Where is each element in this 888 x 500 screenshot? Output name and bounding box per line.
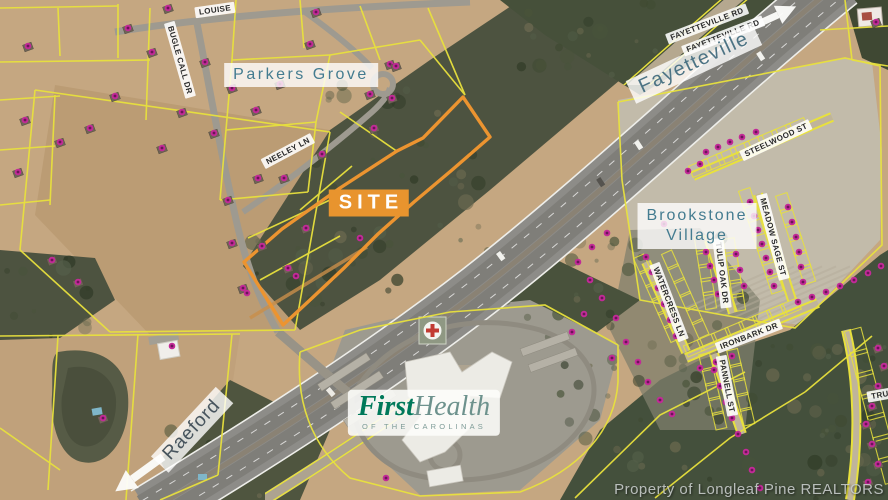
lot-marker-core [865,423,868,426]
lot-marker-core [24,119,27,122]
lot-marker-core [257,177,260,180]
lot-marker-core [743,285,746,288]
logo-tagline: OF THE CAROLINAS [358,422,490,431]
lot-marker-core [751,469,754,472]
lot-marker-core [798,251,801,254]
firsthealth-logo: FirstHealth OF THE CAROLINAS [348,390,500,436]
lot-marker-core [737,433,740,436]
aerial-site-map: LOUISE BUGLE CALL DR NEELEY LN FAYETTEVI… [0,0,888,500]
lot-marker-core [102,417,105,420]
lot-marker-core [246,292,249,295]
logo-health: Health [414,391,490,422]
lot-marker-core [735,253,738,256]
lot-marker-core [765,257,768,260]
lot-marker-core [729,141,732,144]
logo-first: First [358,391,414,422]
lot-marker-core [773,285,776,288]
lot-marker-core [699,367,702,370]
lot-marker-core [741,136,744,139]
lot-marker-core [671,413,674,416]
lot-marker-core [213,132,216,135]
lot-marker-core [114,95,117,98]
lot-marker-core [591,246,594,249]
lot-marker-core [825,291,828,294]
lot-marker-core [395,65,398,68]
lot-marker-core [127,27,130,30]
lot-marker-core [877,347,880,350]
lot-marker-core [369,93,372,96]
lot-marker-core [77,281,80,284]
lot-marker-core [227,199,230,202]
lot-marker-core [161,147,164,150]
lot-marker-core [797,301,800,304]
lot-marker-core [171,345,174,348]
lot-marker-core [802,281,805,284]
lot-marker-core [601,297,604,300]
lot-marker-core [717,146,720,149]
lot-marker-core [261,245,264,248]
lot-marker-core [705,251,708,254]
lot-marker-core [231,87,234,90]
lot-marker-core [287,267,290,270]
lot-marker-core [204,61,207,64]
lot-marker-core [583,313,586,316]
lot-marker-core [755,131,758,134]
neighborhood-label-parkers-grove: Parkers Grove [224,63,378,87]
lot-marker-core [647,381,650,384]
lot-marker-core [883,365,886,368]
lot-marker-core [731,417,734,420]
lot-marker-core [359,237,362,240]
lot-marker-core [871,443,874,446]
lot-marker-core [391,97,394,100]
lot-marker-core [709,265,712,268]
lot-marker-core [757,229,760,232]
lot-marker-core [321,153,324,156]
lot-marker-core [589,279,592,282]
lot-marker-core [89,127,92,130]
lot-marker-core [645,256,648,259]
brookstone-line1: Brookstone [647,206,748,226]
lot-marker-core [839,285,842,288]
lot-marker-core [875,21,878,24]
lot-marker-core [242,287,245,290]
lot-marker-core [713,279,716,282]
lot-marker-core [713,369,716,372]
lot-marker-core [167,7,170,10]
lot-marker-core [231,242,234,245]
lot-marker-core [255,109,258,112]
lot-marker-core [877,385,880,388]
lot-marker-core [17,171,20,174]
lot-marker-core [315,11,318,14]
brookstone-line2: Village [647,226,748,246]
lot-marker-core [787,206,790,209]
lot-marker-core [181,111,184,114]
site-label: SITE [329,190,409,217]
lot-marker-core [867,272,870,275]
lot-marker-core [761,243,764,246]
lot-marker-core [745,451,748,454]
lot-marker-core [871,405,874,408]
lot-marker-core [295,275,298,278]
lot-marker-core [615,317,618,320]
lot-marker-core [611,357,614,360]
lot-marker-core [151,51,154,54]
lot-marker-core [791,221,794,224]
helipad [419,317,446,344]
lot-marker-core [305,227,308,230]
lot-marker-core [606,232,609,235]
neighborhood-label-brookstone-village: Brookstone Village [638,203,757,249]
lot-marker-core [373,127,376,130]
lot-marker-core [385,477,388,480]
lot-marker-core [577,261,580,264]
lot-marker-core [705,151,708,154]
firsthealth-wordmark: FirstHealth [358,392,490,421]
lot-marker-core [625,341,628,344]
lot-marker-core [51,259,54,262]
lot-marker-core [811,296,814,299]
lot-marker-core [27,45,30,48]
lot-marker-core [877,463,880,466]
lot-marker-core [880,265,883,268]
watermark: Property of Longleaf Pine REALTORS [614,481,884,498]
lot-marker-core [800,266,803,269]
lot-marker-core [659,399,662,402]
lot-marker-core [637,361,640,364]
lot-marker-core [283,177,286,180]
lot-marker-core [739,269,742,272]
lot-marker-core [795,236,798,239]
lot-marker-core [769,271,772,274]
lot-marker-core [59,141,62,144]
lot-marker-core [309,43,312,46]
lot-marker-core [699,163,702,166]
lot-marker-core [853,279,856,282]
lot-marker-core [571,331,574,334]
lot-marker-core [687,170,690,173]
lot-marker-core [731,355,734,358]
